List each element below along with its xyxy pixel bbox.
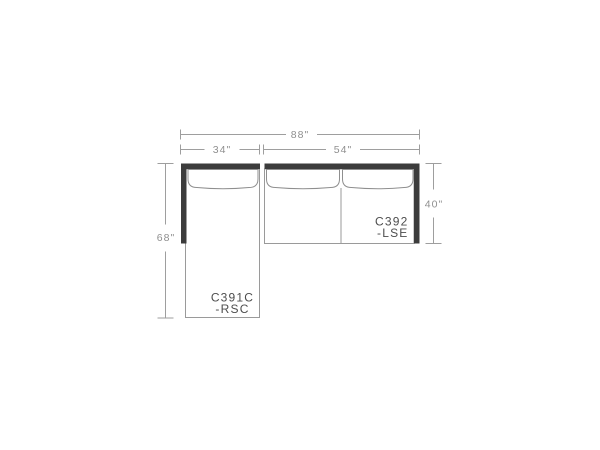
chaise-label-group: C391C -RSC <box>211 291 254 317</box>
dimension-overall-width: 88" <box>181 129 420 141</box>
sofa-label-group: C392 -LSE <box>375 215 409 241</box>
dim-34-label: 34" <box>213 144 231 156</box>
dimension-chaise-width: 34" <box>181 144 260 156</box>
left-armrest <box>181 164 187 244</box>
sofa-cushion-left <box>267 170 340 189</box>
chaise-cushion <box>188 170 258 189</box>
dimension-sofa-width: 54" <box>264 144 420 156</box>
chaise-back-rail <box>181 164 260 170</box>
dimension-sofa-depth: 40" <box>425 164 443 244</box>
sofa-suffix-label: -LSE <box>377 226 408 240</box>
cushions-group <box>188 170 413 189</box>
dim-40-label: 40" <box>425 199 443 211</box>
dimension-chaise-depth: 68" <box>157 164 175 319</box>
sectional-sofa-diagram: 88" 34" 54" 68" 40" C392 -LSE C391C <box>0 0 600 450</box>
sofa-cushion-right <box>343 170 414 189</box>
right-armrest <box>414 164 420 244</box>
dim-88-label: 88" <box>291 129 309 141</box>
sofa-back-rail <box>265 164 420 170</box>
dim-54-label: 54" <box>334 144 352 156</box>
chaise-suffix-label: -RSC <box>215 302 249 316</box>
dim-68-label: 68" <box>157 232 175 244</box>
